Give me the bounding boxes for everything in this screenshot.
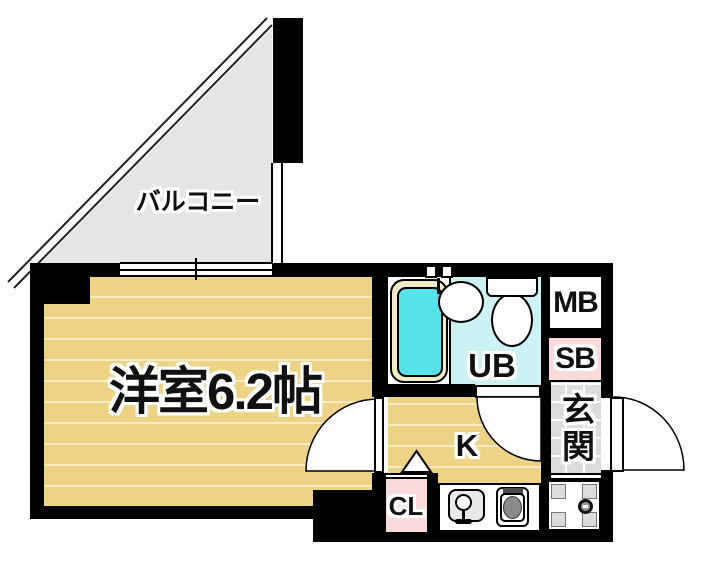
entrance-label: 玄関	[556, 388, 596, 470]
room-door-panel	[374, 397, 384, 473]
window-center-tick	[195, 258, 197, 280]
closet-door-marker	[401, 450, 432, 473]
toilet-bowl	[491, 293, 533, 347]
entrance-door-swing	[614, 397, 684, 470]
entrance-door-panel	[610, 397, 624, 472]
floor-plan: バルコニー 洋室6.2帖 UB MB SB 玄関 K CL	[0, 0, 716, 563]
kitchen-label: K	[450, 427, 484, 463]
balcony-pillar-wall	[273, 18, 303, 163]
stove-burner	[503, 496, 522, 519]
pan-foot-tr	[582, 484, 597, 499]
balcony-label: バルコニー	[118, 188, 278, 216]
pan-foot-bl	[551, 512, 566, 527]
wall-room-bath	[372, 277, 388, 397]
washbasin	[438, 281, 484, 323]
main-room-label: 洋室6.2帖	[60, 360, 370, 422]
wall-top	[30, 263, 613, 277]
meter-box-label: MB	[550, 286, 601, 320]
toilet-tank	[486, 277, 538, 297]
washer-pan	[546, 479, 602, 532]
faucet-handle-right	[441, 265, 453, 278]
shoe-box-label: SB	[549, 342, 601, 376]
unit-bath-label: UB	[462, 347, 522, 383]
closet-top-strip	[386, 473, 427, 479]
faucet-handle-left	[425, 265, 437, 278]
wall-meter-shoe-divider	[541, 328, 613, 338]
wall-right-lower	[601, 470, 613, 542]
pan-drain	[578, 499, 593, 514]
bathtub-water	[397, 287, 443, 377]
pan-foot-tl	[551, 484, 566, 499]
balcony-area	[0, 0, 310, 280]
wall-corner-block	[30, 263, 90, 304]
shoe-box-bottom-line	[549, 380, 601, 382]
pan-foot-br	[582, 512, 597, 527]
kitchen-faucet-bar	[455, 519, 472, 524]
bath-door-swing	[477, 397, 541, 461]
wall-bath-bottom	[372, 384, 475, 397]
closet-label: CL	[383, 491, 429, 521]
